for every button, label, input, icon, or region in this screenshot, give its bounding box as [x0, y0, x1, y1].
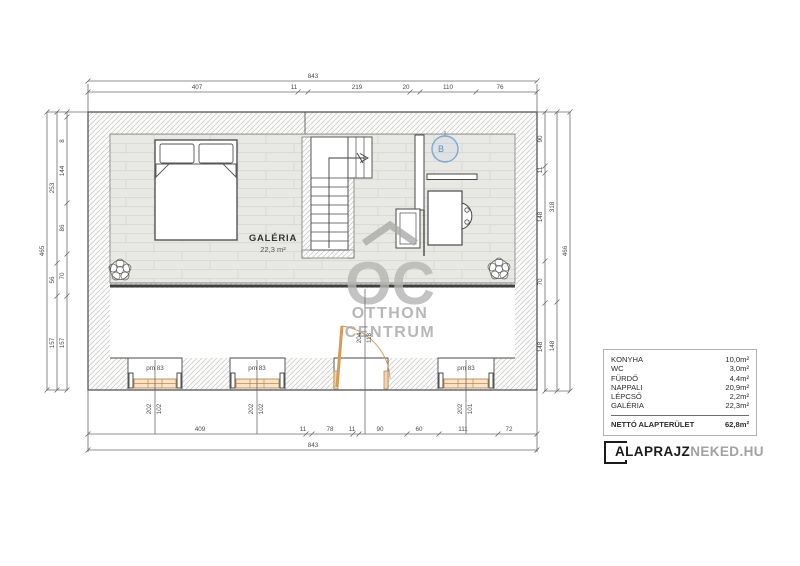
dim: 148	[537, 211, 544, 222]
room-value: 4,4m²	[730, 374, 749, 383]
total-value: 62,8m²	[725, 420, 749, 430]
dim: 78	[326, 426, 334, 433]
dim: 60	[415, 426, 423, 433]
room-area: 22,3 m²	[260, 245, 286, 254]
total-label: NETTÓ ALAPTERÜLET	[611, 420, 694, 430]
dim: 204	[356, 332, 363, 343]
dim: 318	[549, 201, 556, 212]
room-name: GALÉRIA	[611, 401, 644, 410]
room-value: 22,3m²	[725, 401, 749, 410]
wall-shelf	[427, 174, 477, 180]
dim: 86	[59, 224, 66, 232]
dim: 148	[549, 340, 556, 351]
dim-top-segments-line	[86, 90, 540, 95]
table-row: GALÉRIA 22,3m²	[611, 401, 749, 410]
dim: 219	[352, 84, 363, 91]
dim-top-total: 843	[308, 73, 319, 80]
dim: 202	[457, 403, 464, 414]
dim: 70	[59, 272, 66, 280]
logo-bold: ALAPRAJZ	[615, 444, 690, 459]
room-name: LÉPCSŐ	[611, 392, 642, 401]
desk	[428, 191, 462, 245]
table-row: WC 3,0m²	[611, 364, 749, 373]
dim-bottom-total: 843	[308, 442, 319, 449]
dim: 11	[349, 426, 356, 433]
room-name: KONYHA	[611, 355, 643, 364]
dim-left-middle-line	[55, 110, 60, 393]
dim: 56	[49, 276, 56, 284]
dim: 76	[496, 84, 504, 91]
alaprajzneked-logo: ALAPRAJZNEKED.HU	[604, 439, 774, 465]
pillow	[160, 144, 194, 163]
dim: 466	[562, 245, 569, 256]
room-value: 10,0m²	[725, 355, 749, 364]
room-value: 3,0m²	[730, 364, 749, 373]
dim: 111	[458, 426, 468, 433]
dim-left-inner-line	[65, 110, 70, 393]
floor-plan-page: B GALÉRIA 22,3 m² OC OTTHON CENTRUM	[0, 0, 800, 566]
dim: 102	[258, 403, 265, 414]
dim: 110	[443, 84, 454, 91]
dim: 157	[49, 337, 56, 348]
dim: 90	[376, 426, 384, 433]
dim: 90	[537, 135, 544, 143]
window-label: pm 83	[248, 365, 266, 372]
dim: 72	[505, 426, 513, 433]
dim: 409	[195, 426, 206, 433]
room-label: GALÉRIA	[249, 233, 297, 244]
room-value: 2,2m²	[730, 392, 749, 401]
dim: 202	[248, 403, 255, 414]
dim: 465	[39, 245, 46, 256]
dim: 157	[59, 337, 66, 348]
table-row: LÉPCSŐ 2,2m²	[611, 392, 749, 401]
dim: 407	[192, 84, 203, 91]
dim: 102	[156, 403, 163, 414]
dim: 70	[537, 278, 544, 286]
dim: 118	[366, 332, 373, 343]
table-row: KONYHA 10,0m²	[611, 355, 749, 364]
table-total-row: NETTÓ ALAPTERÜLET 62,8m²	[611, 415, 749, 430]
window-label: pm 83	[457, 365, 475, 372]
dim-bottom-segments-line	[86, 432, 540, 437]
dim: 202	[146, 403, 153, 414]
dim: 20	[402, 84, 410, 91]
logo-text: ALAPRAJZNEKED.HU	[613, 443, 766, 460]
table-row: NAPPALI 20,9m²	[611, 383, 749, 392]
dim: 253	[49, 182, 56, 193]
window-label: pm 83	[146, 365, 164, 372]
boiler-label: B	[438, 144, 444, 154]
table-row: FÜRDŐ 4,4m²	[611, 374, 749, 383]
watermark-line1: OTTHON	[352, 305, 429, 322]
dim: 11	[300, 426, 307, 433]
double-bed	[155, 140, 237, 240]
room-name: FÜRDŐ	[611, 374, 638, 383]
dim: 144	[59, 165, 66, 176]
dim: 11	[537, 166, 544, 173]
dim: 11	[291, 84, 298, 91]
logo-light: NEKED.HU	[690, 444, 764, 459]
room-value: 20,9m²	[725, 383, 749, 392]
void-area	[110, 288, 515, 358]
pillow	[199, 144, 233, 163]
dim: 8	[59, 139, 66, 143]
dim: 148	[537, 341, 544, 352]
floor-plan-canvas: B GALÉRIA 22,3 m² OC OTTHON CENTRUM	[0, 0, 800, 566]
area-table: KONYHA 10,0m² WC 3,0m² FÜRDŐ 4,4m² NAPPA…	[603, 349, 757, 436]
room-name: WC	[611, 364, 624, 373]
dim: 101	[467, 403, 474, 414]
room-name: NAPPALI	[611, 383, 643, 392]
